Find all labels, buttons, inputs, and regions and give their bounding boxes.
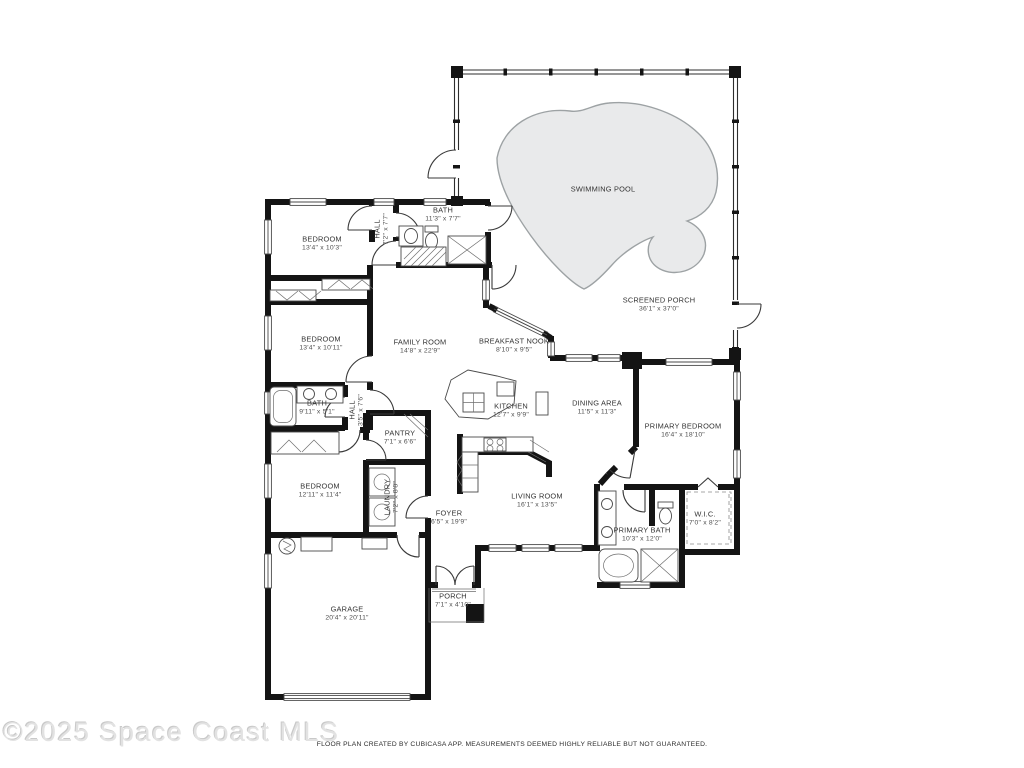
toilet-icon [425,226,438,232]
dining-corner-post [622,352,642,369]
room-label-living-room: LIVING ROOM 16'1" x 13'5" [511,493,562,510]
foyer-closet [462,452,478,492]
room-label-laundry: LAUNDRY 7'2" x 8'8" [384,479,401,516]
room-label-hall-top: HALL 7'2" x 7'7" [374,213,391,245]
room-label-bedroom-mid: BEDROOM 13'4" x 10'11" [299,336,342,353]
garage-door [284,694,410,701]
room-label-kitchen: KITCHEN 12'7" x 9'9" [493,403,529,420]
sink-icon [602,499,613,510]
bath-top-fixtures [399,226,486,266]
toilet-icon [658,502,673,508]
nook-diagonal-window [493,307,548,338]
room-label-primary-bath: PRIMARY BATH 10'3" x 12'0" [613,527,670,544]
water-heater-icon [279,538,295,554]
room-label-pantry: PANTRY 7'1" x 6'6" [384,430,416,447]
sink-icon [602,527,613,538]
hatch-area [401,247,446,266]
room-label-hall-mid: HALL 3'5" x 7'6" [349,394,366,426]
room-label-foyer: FOYER 6'5" x 19'9" [431,510,467,527]
room-label-bedroom-bottom: BEDROOM 12'11" x 11'4" [299,483,342,500]
floor-plan-canvas: SWIMMING POOL SCREENED PORCH 36'1" x 37'… [0,0,1024,768]
room-label-swimming-pool: SWIMMING POOL [571,186,636,195]
room-label-wic: W.I.C. 7'0" x 8'2" [689,511,721,528]
garage-fixtures [279,537,387,554]
sink-icon [405,229,418,244]
room-label-garage: GARAGE 20'4" x 20'11" [325,606,368,623]
footer-disclaimer: FLOOR PLAN CREATED BY CUBICASA APP. MEAS… [0,741,1024,748]
room-label-dining-area: DINING AREA 11'5" x 11'3" [572,400,622,417]
room-label-porch: PORCH 7'1" x 4'10" [435,593,471,610]
room-label-family-room: FAMILY ROOM 14'8" x 22'9" [394,339,447,356]
room-label-primary-bedroom: PRIMARY BEDROOM 16'4" x 18'10" [645,423,722,440]
fridge-icon [536,392,548,415]
room-label-bath-top: BATH 11'3" x 7'7" [425,207,460,224]
swimming-pool-shape [497,103,717,289]
bathtub-icon [270,387,296,426]
room-label-screened-porch: SCREENED PORCH 36'1" x 37'0" [623,297,696,314]
room-label-bedroom-top: BEDROOM 13'4" x 10'3" [302,236,342,253]
room-label-breakfast-nook: BREAKFAST NOOK 8'10" x 9'5" [479,338,549,355]
room-label-bath-mid: BATH 9'11" x 5'1" [299,400,334,417]
sink-icon [326,389,337,400]
floor-plan-drawing [0,0,1024,768]
